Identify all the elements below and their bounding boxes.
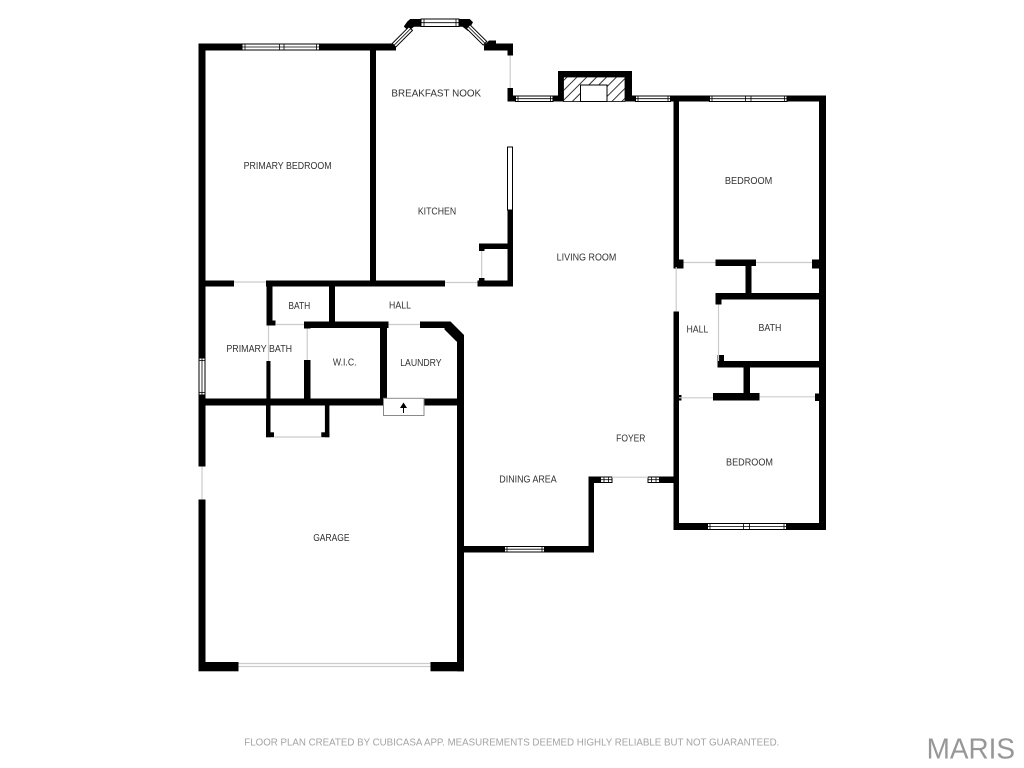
svg-text:FLOOR PLAN CREATED BY CUBICASA: FLOOR PLAN CREATED BY CUBICASA APP. MEAS… bbox=[244, 738, 779, 749]
svg-text:DINING AREA: DINING AREA bbox=[499, 475, 557, 486]
svg-text:KITCHEN: KITCHEN bbox=[418, 207, 456, 218]
svg-text:PRIMARY BATH: PRIMARY BATH bbox=[226, 344, 292, 355]
svg-text:FOYER: FOYER bbox=[616, 433, 645, 444]
svg-text:LIVING ROOM: LIVING ROOM bbox=[557, 253, 617, 264]
svg-text:HALL: HALL bbox=[686, 325, 708, 336]
svg-text:HALL: HALL bbox=[389, 300, 411, 311]
svg-text:BREAKFAST NOOK: BREAKFAST NOOK bbox=[391, 89, 481, 100]
svg-text:BATH: BATH bbox=[758, 323, 781, 334]
svg-text:LAUNDRY: LAUNDRY bbox=[400, 358, 442, 369]
svg-text:BEDROOM: BEDROOM bbox=[726, 457, 773, 468]
svg-text:PRIMARY BEDROOM: PRIMARY BEDROOM bbox=[244, 161, 332, 172]
svg-text:MARIS: MARIS bbox=[927, 734, 1015, 766]
svg-text:GARAGE: GARAGE bbox=[313, 533, 350, 544]
svg-text:W.I.C.: W.I.C. bbox=[333, 357, 357, 368]
svg-text:BEDROOM: BEDROOM bbox=[725, 176, 773, 187]
svg-text:BATH: BATH bbox=[288, 301, 310, 312]
